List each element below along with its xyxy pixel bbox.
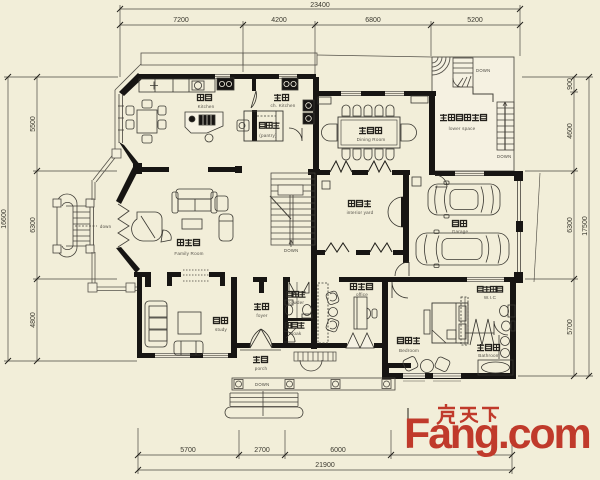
svg-text:down: down: [100, 224, 112, 229]
svg-text:foyer: foyer: [256, 313, 267, 318]
svg-text:6300: 6300: [30, 217, 37, 233]
svg-text:21900: 21900: [315, 462, 335, 469]
svg-text:DOWN: DOWN: [497, 154, 511, 159]
svg-text:5700: 5700: [180, 447, 196, 454]
svg-text:6000: 6000: [330, 447, 346, 454]
svg-text:DOWN: DOWN: [476, 68, 490, 73]
svg-text:4200: 4200: [271, 17, 287, 24]
svg-text:interior yard: interior yard: [347, 210, 374, 215]
svg-text:23400: 23400: [310, 2, 330, 9]
svg-text:ch. Kitchen: ch. Kitchen: [271, 103, 296, 108]
svg-text:Cloak: Cloak: [289, 331, 302, 336]
svg-text:4800: 4800: [30, 312, 37, 328]
svg-text:lower space: lower space: [449, 126, 476, 131]
svg-text:Bedroom: Bedroom: [399, 348, 419, 353]
svg-text:W.I.C: W.I.C: [484, 295, 497, 300]
svg-text:Family Room: Family Room: [174, 251, 203, 256]
svg-text:powder: powder: [288, 300, 305, 305]
svg-text:DOWN: DOWN: [255, 382, 269, 387]
svg-text:2700: 2700: [254, 447, 270, 454]
svg-text:16600: 16600: [1, 209, 8, 229]
svg-text:study: study: [215, 327, 227, 332]
svg-text:DOWN: DOWN: [284, 248, 298, 253]
svg-text:5700: 5700: [567, 319, 574, 335]
svg-text:Fang.com: Fang.com: [404, 410, 589, 458]
svg-text:office: office: [356, 292, 368, 297]
svg-text:7200: 7200: [173, 17, 189, 24]
svg-text:Garage: Garage: [452, 229, 469, 234]
svg-text:Dining Room: Dining Room: [357, 137, 386, 142]
svg-text:porch: porch: [255, 366, 268, 371]
svg-text:(pantry): (pantry): [259, 133, 277, 138]
svg-text:5200: 5200: [467, 17, 483, 24]
svg-text:6800: 6800: [365, 17, 381, 24]
svg-text:900: 900: [567, 78, 574, 90]
svg-text:Bathroom: Bathroom: [478, 353, 500, 358]
svg-text:17500: 17500: [582, 216, 589, 236]
svg-text:4600: 4600: [567, 123, 574, 139]
svg-text:6300: 6300: [567, 217, 574, 233]
svg-text:Kitchen: Kitchen: [198, 104, 215, 109]
svg-text:5500: 5500: [30, 116, 37, 132]
